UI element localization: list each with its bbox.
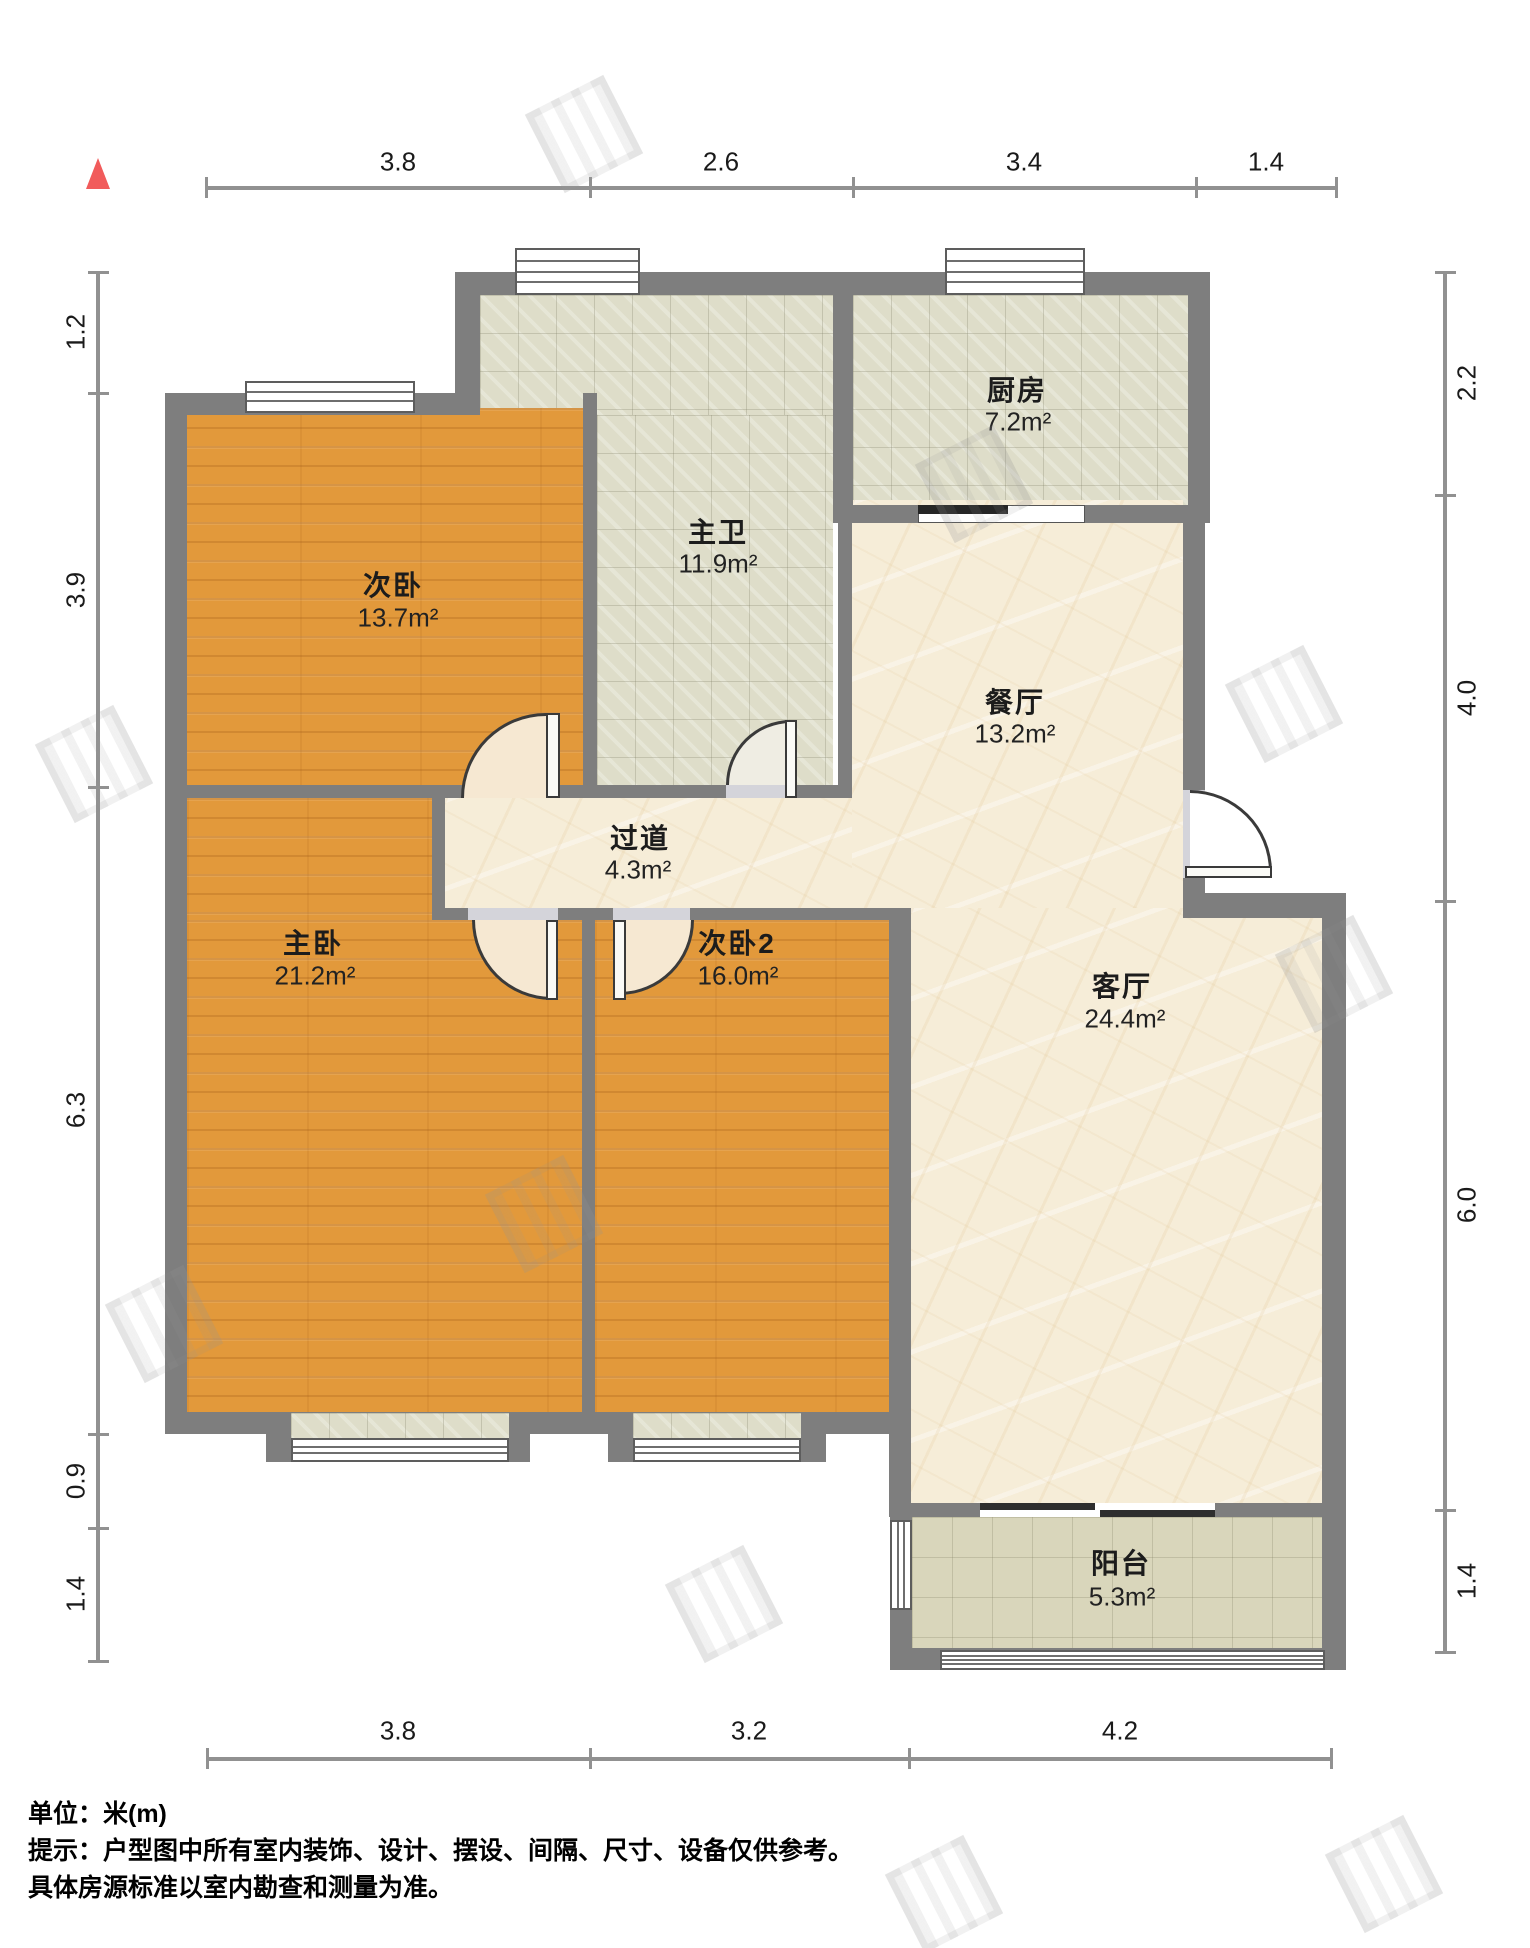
dimension-line-left [96,272,100,1661]
bathroom-floor [597,415,833,798]
window [515,248,640,295]
kitchen-opening-lintel [918,505,1008,514]
wall [833,272,853,508]
dimension-value: 4.2 [1102,1716,1138,1747]
bathroom-floor [480,295,833,417]
wall [582,908,595,1434]
room-label: 过道 [610,817,670,857]
watermark [35,705,153,823]
dimension-tick [852,177,855,198]
wall [432,798,445,920]
room-area: 24.4m² [1085,1004,1166,1035]
dimension-tick [1435,271,1456,274]
dimension-tick [589,177,592,198]
bay-window-pier [266,1430,291,1462]
room-label: 次卧 [363,564,423,604]
bay-window-sill [633,1413,801,1440]
dimension-value: 0.9 [61,1463,92,1499]
footer-notes: 单位：米(m) 提示：户型图中所有室内装饰、设计、摆设、间隔、尺寸、设备仅供参考… [28,1796,853,1907]
door-threshold [468,908,558,920]
dimension-tick [1335,177,1338,198]
room-area: 16.0m² [698,961,779,992]
dimension-value: 4.0 [1452,680,1483,716]
entry-door-swing [1190,790,1272,872]
watermark [525,75,643,193]
dimension-tick [205,177,208,198]
bedroom3-floor [595,920,889,1412]
dimension-tick [88,786,109,789]
room-area: 13.7m² [358,603,439,634]
room-label: 客厅 [1092,965,1152,1005]
dimension-line-right [1443,272,1447,1652]
watermark [885,1835,1003,1948]
watermark [1325,1815,1443,1933]
room-area: 21.2m² [275,961,356,992]
room-area: 13.2m² [975,719,1056,750]
dimension-value: 2.6 [703,147,739,178]
dimension-tick [88,271,109,274]
room-area: 5.3m² [1089,1582,1155,1613]
bedroom3-door [613,920,626,1000]
bedroom2-door [546,713,560,798]
room-area: 7.2m² [985,407,1051,438]
wall [583,393,597,798]
dimension-tick [88,1433,109,1436]
dimension-tick [206,1748,209,1769]
north-arrow-icon [86,158,110,189]
wall [1183,505,1205,790]
dimension-value: 3.4 [1006,147,1042,178]
dimension-value: 1.4 [1248,147,1284,178]
dimension-tick [1195,177,1198,198]
balcony-window [940,1650,1325,1670]
dimension-value: 6.3 [61,1092,92,1128]
wall [838,508,852,798]
kitchen-window [945,248,1085,295]
wall [1322,893,1346,1670]
wall [889,908,911,1517]
balcony-side-window [890,1520,912,1610]
room-label: 餐厅 [985,681,1045,721]
room-area: 11.9m² [679,549,758,580]
bay-window-pier [509,1430,530,1462]
bay-window-pier [801,1430,826,1462]
room-area: 4.3m² [605,855,671,886]
dimension-value: 1.4 [1452,1563,1483,1599]
master-bay-window [291,1438,509,1462]
dimension-tick [1435,900,1456,903]
dimension-value: 1.4 [61,1576,92,1612]
dimension-tick [88,392,109,395]
dimension-tick [88,1660,109,1663]
bathroom-door [785,720,797,798]
wall [1188,272,1210,523]
bay-window-pier [608,1430,633,1462]
dimension-value: 1.2 [61,314,92,350]
dimension-tick [1435,1651,1456,1654]
entry-door [1185,866,1272,878]
disclaimer-line1: 提示：户型图中所有室内装饰、设计、摆设、间隔、尺寸、设备仅供参考。 [28,1833,853,1870]
dimension-tick [589,1748,592,1769]
bedroom3-bay-window [633,1438,801,1462]
master-bedroom-door [546,920,558,1000]
room-label: 阳台 [1091,1542,1151,1582]
dimension-value: 2.2 [1452,365,1483,401]
dimension-line-bottom [207,1757,1332,1761]
bedroom2-window [245,381,415,413]
dimension-tick [88,1527,109,1530]
dimension-value: 6.0 [1452,1187,1483,1223]
dimension-value: 3.2 [731,1716,767,1747]
dimension-line-top [206,186,1337,190]
disclaimer-line2: 具体房源标准以室内勘查和测量为准。 [28,1870,853,1907]
dimension-tick [1435,1509,1456,1512]
sliding-door-panel [980,1503,1095,1510]
dimension-value: 3.9 [61,572,92,608]
dimension-tick [1435,494,1456,497]
room-label: 次卧2 [698,922,776,962]
bay-window-sill [291,1413,509,1440]
sliding-door-panel [1100,1510,1215,1517]
watermark [665,1545,783,1663]
dimension-tick [1330,1748,1333,1769]
dimension-value: 3.8 [380,147,416,178]
floor-plan: 次卧 13.7m² 主卫 11.9m² 厨房 7.2m² 餐厅 13.2m² 过… [0,0,1530,1948]
room-label: 主卧 [283,922,343,962]
watermark [1225,645,1343,763]
room-label: 主卫 [688,511,748,551]
room-label: 厨房 [987,369,1047,409]
wall [165,393,187,1434]
dimension-value: 3.8 [380,1716,416,1747]
door-threshold [613,908,690,920]
unit-note: 单位：米(m) [28,1796,853,1833]
dimension-tick [908,1748,911,1769]
